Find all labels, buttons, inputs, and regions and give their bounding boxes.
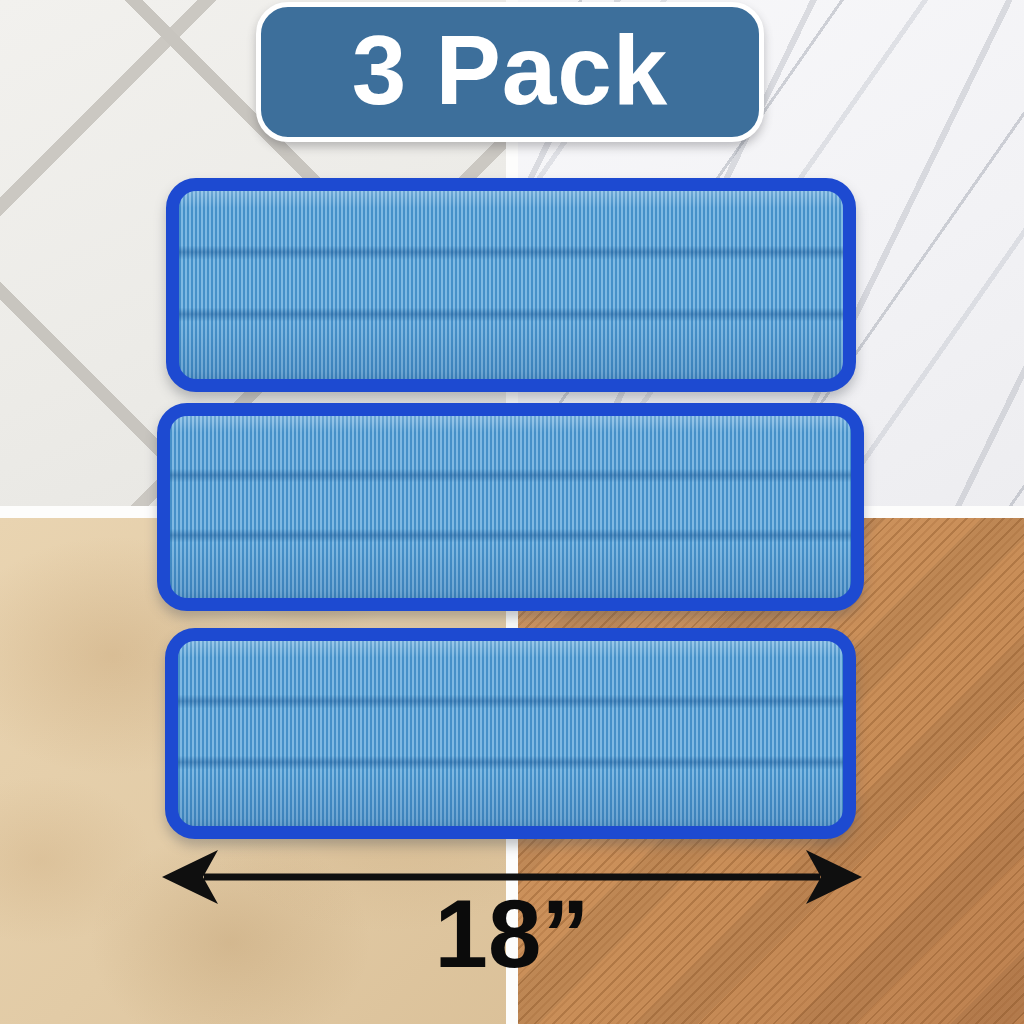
mop-pad-2 <box>157 403 864 611</box>
width-dimension-label: 18” <box>435 886 590 982</box>
product-image-canvas: 3 Pack 18” <box>0 0 1024 1024</box>
mop-pad-3 <box>165 628 856 839</box>
mop-pad-1 <box>166 178 856 392</box>
pack-count-badge: 3 Pack <box>256 2 764 142</box>
pack-count-label: 3 Pack <box>352 21 669 119</box>
